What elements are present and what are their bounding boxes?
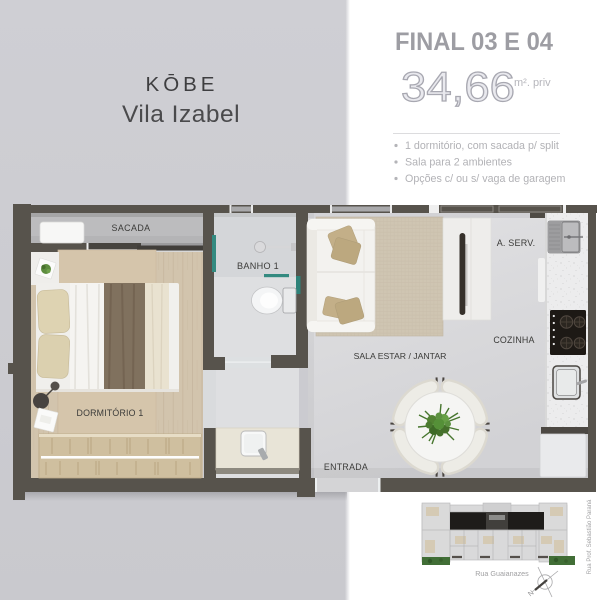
svg-text:Rua Prof. Sebastião Paraná: Rua Prof. Sebastião Paraná [587,499,593,574]
svg-text:1 dormitório, com sacada p/ sp: 1 dormitório, com sacada p/ split [405,140,559,152]
svg-text:SALA ESTAR / JANTAR: SALA ESTAR / JANTAR [354,351,447,361]
svg-text:SACADA: SACADA [112,223,151,233]
svg-text:Rua Guaianazes: Rua Guaianazes [475,569,529,578]
svg-text:ENTRADA: ENTRADA [324,462,368,472]
svg-text:34,66: 34,66 [401,63,515,110]
svg-text:Opções c/ ou s/ vaga de garage: Opções c/ ou s/ vaga de garagem [405,173,566,185]
svg-text:Vila Izabel: Vila Izabel [122,101,240,128]
svg-text:m². priv: m². priv [514,77,551,89]
svg-text:DORMITÓRIO 1: DORMITÓRIO 1 [77,408,144,418]
svg-text:FINAL 03 E 04: FINAL 03 E 04 [395,28,553,56]
svg-text:KŌBE: KŌBE [146,73,219,96]
svg-text:COZINHA: COZINHA [493,335,534,345]
svg-text:Sala para 2 ambientes: Sala para 2 ambientes [405,157,512,169]
svg-text:A. SERV.: A. SERV. [497,238,536,248]
svg-text:BANHO 1: BANHO 1 [237,261,279,271]
